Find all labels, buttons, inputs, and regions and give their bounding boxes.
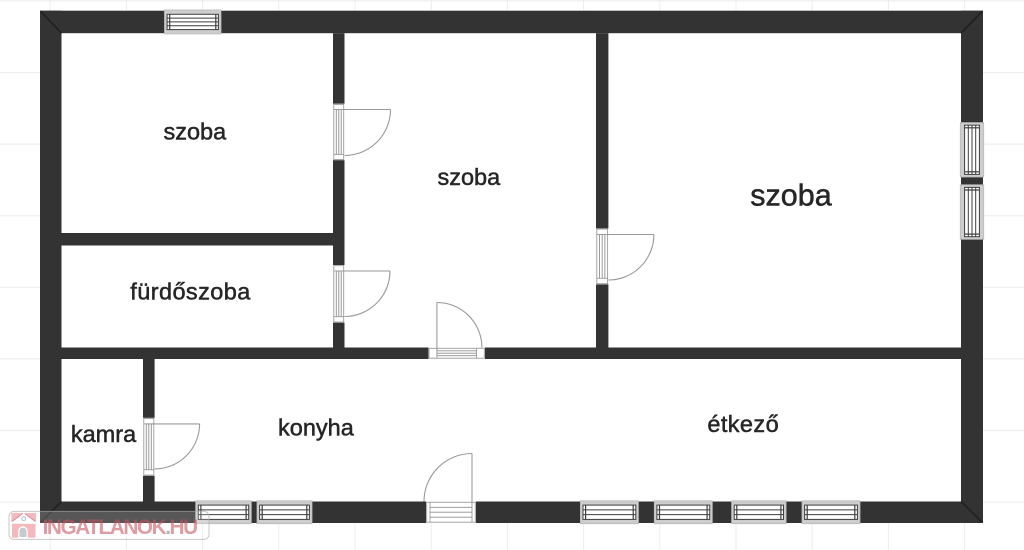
svg-text:fürdőszoba: fürdőszoba <box>130 278 251 304</box>
svg-text:kamra: kamra <box>71 421 137 447</box>
svg-text:konyha: konyha <box>278 414 355 440</box>
svg-text:szoba: szoba <box>437 164 501 190</box>
svg-text:étkező: étkező <box>707 411 778 437</box>
svg-text:szoba: szoba <box>163 119 227 145</box>
svg-text:szoba: szoba <box>750 178 831 212</box>
svg-text:INGATLANOK.HU: INGATLANOK.HU <box>43 516 197 539</box>
